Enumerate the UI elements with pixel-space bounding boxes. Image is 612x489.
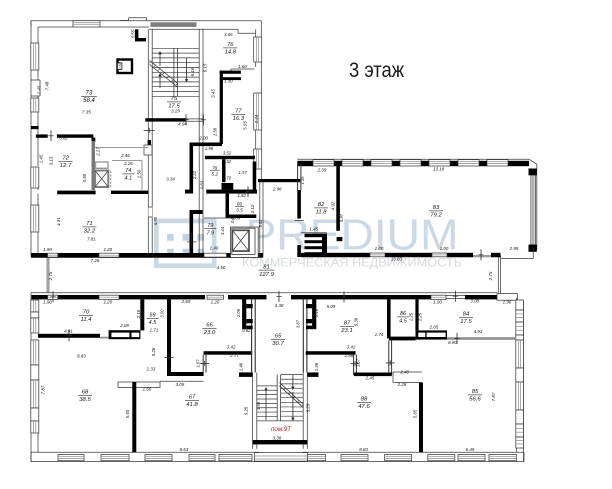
svg-text:1.98: 1.98: [205, 146, 214, 151]
svg-text:1.20: 1.20: [103, 299, 112, 304]
svg-text:58.4: 58.4: [83, 98, 95, 104]
svg-text:2.09: 2.09: [119, 323, 129, 328]
svg-text:1.90: 1.90: [43, 299, 52, 304]
svg-text:3.44: 3.44: [220, 226, 225, 235]
svg-text:2.39: 2.39: [317, 168, 327, 173]
svg-text:75: 75: [171, 96, 178, 102]
svg-text:2.25: 2.25: [409, 312, 414, 322]
svg-text:71: 71: [86, 221, 93, 227]
svg-text:1.74: 1.74: [375, 332, 384, 337]
svg-text:41.8: 41.8: [186, 402, 198, 408]
svg-text:68: 68: [82, 390, 89, 396]
svg-text:2.33: 2.33: [146, 367, 156, 372]
svg-text:72: 72: [62, 156, 69, 162]
svg-text:1.45: 1.45: [39, 154, 44, 163]
svg-text:12.7: 12.7: [60, 163, 72, 169]
svg-text:4.50: 4.50: [256, 401, 261, 410]
svg-text:87: 87: [344, 321, 351, 327]
svg-text:83: 83: [433, 205, 440, 211]
svg-text:3.00: 3.00: [160, 309, 165, 318]
svg-text:1.58: 1.58: [213, 127, 218, 136]
svg-text:2.88: 2.88: [344, 353, 354, 358]
svg-text:81: 81: [263, 264, 270, 270]
svg-text:4.1: 4.1: [124, 176, 132, 182]
svg-text:3.38: 3.38: [273, 436, 282, 441]
svg-text:11.4: 11.4: [80, 317, 92, 323]
svg-text:2.05: 2.05: [429, 325, 439, 330]
svg-text:86: 86: [400, 311, 407, 317]
svg-text:6.15: 6.15: [203, 63, 208, 72]
svg-text:1.00: 1.00: [440, 246, 449, 251]
svg-text:5.95: 5.95: [242, 121, 247, 130]
svg-text:4.93: 4.93: [474, 329, 483, 334]
svg-text:65: 65: [275, 334, 282, 340]
svg-text:7.87: 7.87: [41, 385, 46, 394]
svg-text:38.5: 38.5: [79, 397, 91, 403]
svg-text:1.00: 1.00: [375, 246, 384, 251]
svg-text:17.5: 17.5: [460, 319, 472, 325]
svg-text:69: 69: [149, 313, 155, 319]
svg-text:67: 67: [189, 395, 196, 401]
svg-text:79: 79: [207, 223, 213, 229]
svg-text:1.45: 1.45: [309, 227, 318, 232]
svg-text:1.82: 1.82: [238, 193, 247, 198]
svg-text:1.96: 1.96: [503, 299, 512, 304]
svg-text:1.57: 1.57: [239, 170, 248, 175]
svg-text:1.45: 1.45: [36, 85, 41, 94]
svg-text:2.75: 2.75: [488, 271, 493, 281]
svg-text:2.28: 2.28: [397, 382, 407, 387]
svg-text:1.66: 1.66: [143, 387, 152, 392]
svg-text:2.22: 2.22: [192, 170, 197, 180]
svg-text:5.97: 5.97: [339, 213, 344, 222]
svg-text:7.81: 7.81: [87, 237, 96, 242]
svg-text:2.75: 2.75: [48, 271, 53, 281]
svg-text:2.98: 2.98: [272, 187, 282, 192]
svg-text:88: 88: [361, 397, 368, 403]
svg-text:4.5: 4.5: [399, 319, 408, 325]
svg-text:1.60: 1.60: [238, 64, 247, 69]
svg-text:0.70: 0.70: [223, 176, 232, 181]
svg-text:77: 77: [235, 109, 242, 115]
svg-text:2.25: 2.25: [418, 312, 423, 322]
svg-text:8.83: 8.83: [77, 354, 86, 359]
svg-text:4.92: 4.92: [331, 201, 336, 210]
svg-text:2.77: 2.77: [229, 353, 239, 358]
svg-text:5.36: 5.36: [354, 317, 359, 326]
svg-text:7.35: 7.35: [82, 110, 91, 115]
svg-text:1.20: 1.20: [211, 299, 220, 304]
svg-text:1.57: 1.57: [355, 358, 360, 367]
svg-text:4.94: 4.94: [178, 122, 187, 127]
svg-text:2.95: 2.95: [509, 246, 519, 251]
svg-text:5.25: 5.25: [244, 406, 249, 415]
svg-text:2.00: 2.00: [198, 136, 208, 141]
svg-text:5.65: 5.65: [125, 409, 130, 418]
svg-text:79.2: 79.2: [430, 213, 442, 219]
svg-text:3.42: 3.42: [227, 345, 236, 350]
svg-text:2.12: 2.12: [250, 204, 255, 214]
svg-text:5.09: 5.09: [327, 304, 336, 309]
svg-text:1.20: 1.20: [103, 247, 112, 252]
svg-text:4.50: 4.50: [217, 265, 226, 270]
svg-text:1.00: 1.00: [433, 299, 442, 304]
svg-text:5.26: 5.26: [151, 347, 156, 356]
svg-text:8.63: 8.63: [180, 447, 189, 452]
svg-text:5.2: 5.2: [211, 171, 218, 177]
svg-text:74: 74: [125, 168, 131, 174]
svg-text:7.48: 7.48: [45, 81, 50, 90]
svg-text:23.1: 23.1: [340, 328, 352, 334]
svg-text:3.66: 3.66: [224, 32, 233, 37]
svg-text:2.45: 2.45: [365, 376, 375, 381]
svg-text:30.7: 30.7: [272, 341, 284, 347]
svg-text:73: 73: [86, 91, 93, 97]
svg-text:3.45: 3.45: [211, 89, 216, 98]
svg-text:3.34: 3.34: [166, 177, 175, 182]
svg-text:3.05: 3.05: [176, 382, 185, 387]
svg-text:2.40: 2.40: [399, 369, 409, 374]
svg-text:1.35: 1.35: [300, 176, 305, 185]
svg-text:пом.9Т: пом.9Т: [271, 426, 292, 433]
svg-text:1.30: 1.30: [224, 79, 233, 84]
svg-text:0.55: 0.55: [130, 29, 135, 38]
svg-text:70: 70: [83, 310, 90, 316]
svg-text:11.8: 11.8: [315, 210, 327, 216]
svg-text:3.42: 3.42: [347, 345, 356, 350]
svg-text:0.63: 0.63: [118, 61, 123, 70]
svg-text:2.09: 2.09: [236, 308, 241, 318]
svg-text:PREDIUM: PREDIUM: [246, 211, 459, 260]
svg-text:8.83: 8.83: [359, 447, 368, 452]
svg-text:5.25: 5.25: [306, 403, 311, 412]
svg-text:4.31: 4.31: [56, 217, 61, 226]
svg-text:3.38: 3.38: [275, 303, 284, 308]
svg-text:3.87: 3.87: [296, 319, 301, 328]
svg-text:3.82: 3.82: [59, 136, 68, 141]
svg-text:2.46: 2.46: [120, 153, 130, 158]
svg-text:3.08: 3.08: [470, 299, 479, 304]
svg-text:3.5: 3.5: [236, 208, 243, 214]
svg-text:2.65: 2.65: [181, 299, 191, 304]
svg-text:0.83: 0.83: [200, 180, 205, 189]
svg-text:32.2: 32.2: [84, 229, 96, 235]
svg-text:7.26: 7.26: [91, 258, 100, 263]
svg-text:2.24: 2.24: [254, 114, 259, 124]
svg-text:2.16: 2.16: [314, 308, 319, 318]
svg-text:7.87: 7.87: [491, 392, 496, 401]
svg-text:1.90: 1.90: [43, 247, 52, 252]
svg-text:47.6: 47.6: [358, 404, 370, 410]
svg-text:0.65: 0.65: [230, 214, 235, 223]
svg-text:5.02: 5.02: [258, 219, 263, 228]
svg-text:76: 76: [227, 42, 234, 48]
svg-text:56.6: 56.6: [469, 397, 481, 403]
svg-text:3.13: 3.13: [48, 156, 53, 165]
svg-text:6.55: 6.55: [153, 216, 158, 225]
svg-text:2.18: 2.18: [136, 309, 141, 319]
svg-text:6.45: 6.45: [466, 447, 475, 452]
svg-text:1.40: 1.40: [210, 246, 219, 251]
svg-text:82: 82: [318, 202, 325, 208]
svg-text:127.9: 127.9: [259, 272, 274, 278]
svg-text:2.27: 2.27: [96, 147, 101, 157]
svg-text:23.0: 23.0: [203, 330, 216, 336]
svg-text:1.46: 1.46: [314, 362, 319, 371]
svg-text:14.8: 14.8: [225, 50, 237, 56]
svg-text:13.18: 13.18: [433, 167, 445, 172]
svg-text:8.90: 8.90: [448, 340, 457, 345]
svg-text:2.26: 2.26: [123, 161, 133, 166]
svg-text:3 этаж: 3 этаж: [349, 59, 404, 82]
svg-text:КОММЕРЧЕСКАЯ НЕДВИЖИМОСТЬ: КОММЕРЧЕСКАЯ НЕДВИЖИМОСТЬ: [242, 256, 462, 270]
svg-text:85: 85: [472, 389, 479, 395]
svg-text:0.85: 0.85: [82, 173, 87, 182]
svg-text:66: 66: [206, 323, 213, 329]
svg-text:1.71: 1.71: [150, 328, 159, 333]
svg-text:13.80: 13.80: [391, 257, 403, 262]
svg-text:1.50: 1.50: [137, 169, 142, 178]
svg-text:3.52: 3.52: [223, 151, 232, 156]
svg-text:1.46: 1.46: [239, 362, 244, 371]
svg-text:0.82: 0.82: [242, 328, 251, 333]
svg-text:3.52: 3.52: [223, 159, 232, 164]
svg-text:4.5: 4.5: [149, 320, 158, 326]
svg-text:84: 84: [463, 312, 470, 318]
svg-text:7.9: 7.9: [206, 230, 214, 236]
svg-text:4.91: 4.91: [64, 329, 73, 334]
svg-text:6.16: 6.16: [190, 67, 195, 76]
svg-text:5.65: 5.65: [413, 409, 418, 418]
svg-text:1.57: 1.57: [196, 359, 201, 368]
svg-text:3.29: 3.29: [171, 109, 180, 114]
